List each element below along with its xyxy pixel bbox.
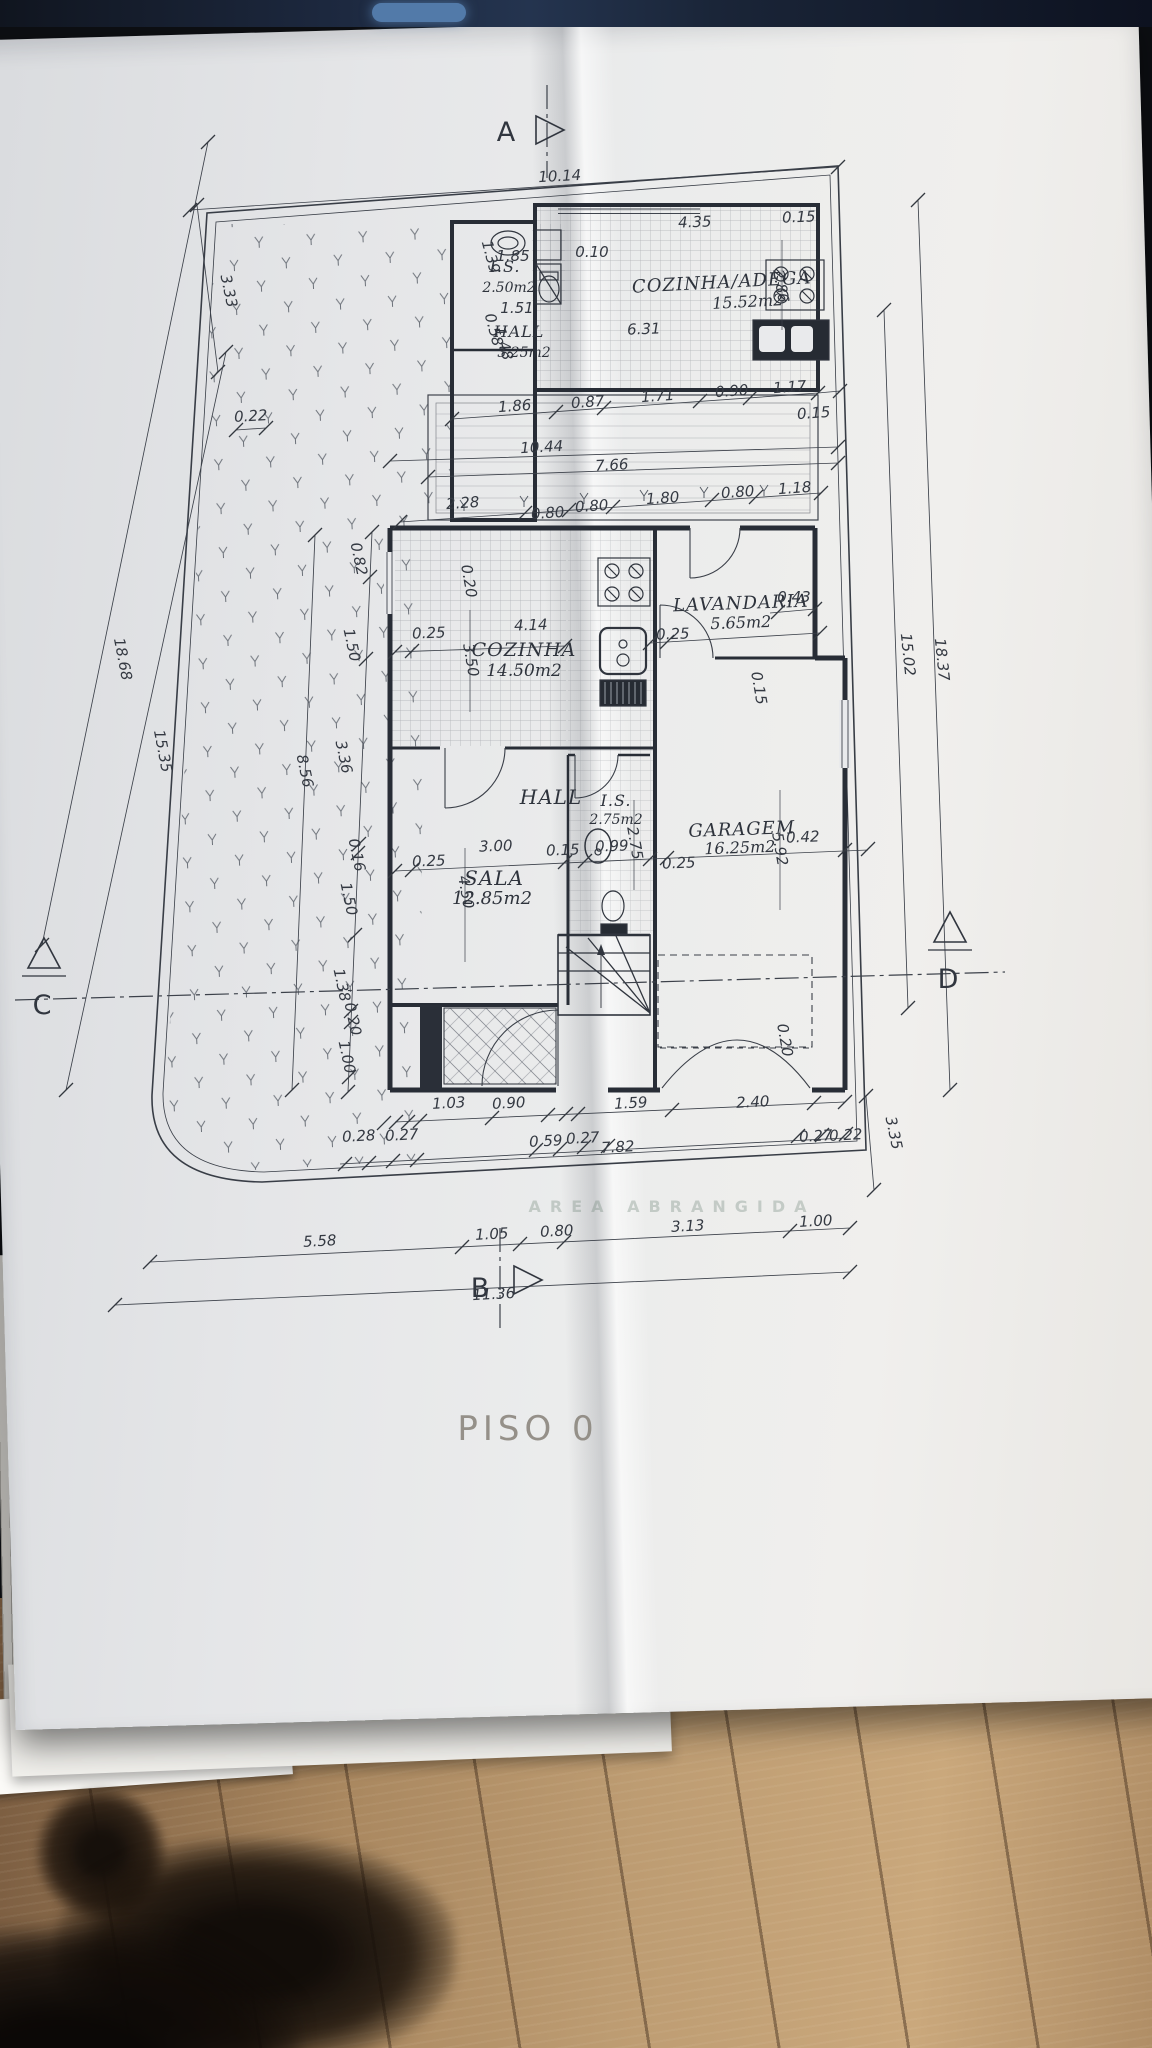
dim-label: 15.35: [150, 728, 176, 774]
dim-label: 0.80: [720, 482, 755, 502]
dim-label: 0.25: [412, 623, 446, 642]
dim-label: 0.22: [829, 1125, 863, 1145]
appliance-icon: [600, 680, 646, 706]
room-area: 5.65m2: [710, 612, 772, 633]
dim-label: 1.59: [614, 1093, 648, 1113]
sink-icon: [753, 320, 829, 360]
room-area: 14.50m2: [486, 661, 562, 681]
dim-label: 1.80: [645, 488, 680, 508]
corner-shadow: [0, 1930, 300, 2048]
dim-label: 3.35: [882, 1115, 907, 1151]
room-area: 3.25m2: [497, 345, 550, 361]
dim-label: 0.28: [342, 1126, 376, 1146]
dim-label: 1.51: [500, 299, 533, 317]
dim-label: 0.27: [566, 1128, 601, 1148]
blue-object: [372, 3, 466, 22]
dim-label: 18.37: [931, 637, 953, 682]
dim-label: 1.71: [640, 386, 675, 406]
dim-label: 0.15: [796, 403, 831, 423]
marker-letter: A: [497, 117, 516, 148]
dim-label: 5.58: [303, 1231, 337, 1251]
dim-label: 1.86: [497, 396, 532, 416]
section-arrow-icon: [514, 1266, 542, 1294]
faded-stamp-text: AREA ABRANGIDA: [528, 1197, 815, 1216]
porch-paving: [444, 1008, 556, 1084]
room-name: HALL: [493, 322, 545, 341]
section-arrow-icon: [536, 116, 564, 144]
dim-label: 7.66: [595, 455, 629, 475]
room-name: SALA: [464, 866, 524, 890]
dim-label: 10.14: [538, 166, 582, 186]
dim-label: 1.18: [777, 478, 812, 498]
room-area: 15.52m2: [712, 290, 784, 313]
drawing-title: PISO 0: [457, 1409, 598, 1449]
dim-label: 15.02: [897, 632, 919, 677]
dim-label: 0.20: [773, 1022, 797, 1058]
room-area: 12.85m2: [452, 888, 532, 909]
room-area: 2.50m2: [481, 280, 535, 296]
room-name: HALL: [519, 785, 582, 809]
dim-label: 0.87: [570, 392, 605, 412]
marker-letter: C: [33, 990, 52, 1021]
stairs: [558, 935, 650, 1015]
dim-label: 0.80: [574, 496, 609, 516]
room-name: COZINHA: [472, 639, 577, 661]
dim-label: 4.35: [678, 212, 712, 231]
top-dark-strip: [0, 0, 1152, 27]
dim-label: 0.80: [540, 1221, 574, 1241]
dim-label: 0.25: [412, 851, 446, 870]
section-marker-a: A: [497, 116, 564, 148]
dim-label: 0.25: [656, 624, 690, 643]
dim-label: 11.36: [472, 1284, 516, 1304]
dim-label: 3.13: [671, 1216, 705, 1236]
dim-label: 4.14: [514, 615, 548, 634]
dim-label: 6.31: [627, 319, 661, 338]
section-marker-d: D: [928, 912, 972, 995]
photo-of-floor-plan: A B C D 10.143.330.2218.6815.351.851.391…: [0, 0, 1152, 2048]
marker-letter: D: [938, 964, 959, 995]
dim-label: 0.15: [546, 840, 580, 859]
dim-label: 0.90: [492, 1093, 526, 1113]
dim-label: 0.59: [529, 1131, 563, 1151]
dim-label: 1.03: [432, 1093, 466, 1113]
room-name: I.S.: [489, 257, 521, 276]
dim-label: 1.05: [475, 1224, 509, 1244]
dim-label: 0.15: [782, 207, 816, 226]
dim-label: 2.40: [736, 1092, 770, 1112]
dim-label: 0.22: [234, 406, 268, 426]
dim-label: 10.44: [520, 437, 564, 457]
dim-label: 18.68: [110, 636, 136, 682]
dim-label: 1.17: [772, 377, 807, 397]
floor-plan-drawing: A B C D 10.143.330.2218.6815.351.851.391…: [0, 0, 1152, 2048]
room-area: 16.25m2: [704, 837, 776, 858]
dim-label: 0.99: [595, 836, 629, 855]
section-marker-c: C: [22, 938, 66, 1021]
dim-label: 2.28: [445, 493, 480, 513]
dim-label: 0.90: [714, 381, 749, 401]
room-area: 2.75m2: [588, 812, 642, 828]
section-triangle-icon: [934, 912, 966, 942]
dim-label: 7.82: [601, 1137, 635, 1157]
dim-label: 0.10: [575, 243, 608, 261]
dim-label: 0.80: [530, 503, 565, 523]
dim-label: 0.15: [747, 670, 771, 706]
dim-label: 3.00: [479, 836, 513, 855]
dim-label: 0.25: [662, 853, 696, 872]
dim-label: 0.27: [385, 1125, 420, 1145]
room-name: I.S.: [600, 791, 632, 810]
